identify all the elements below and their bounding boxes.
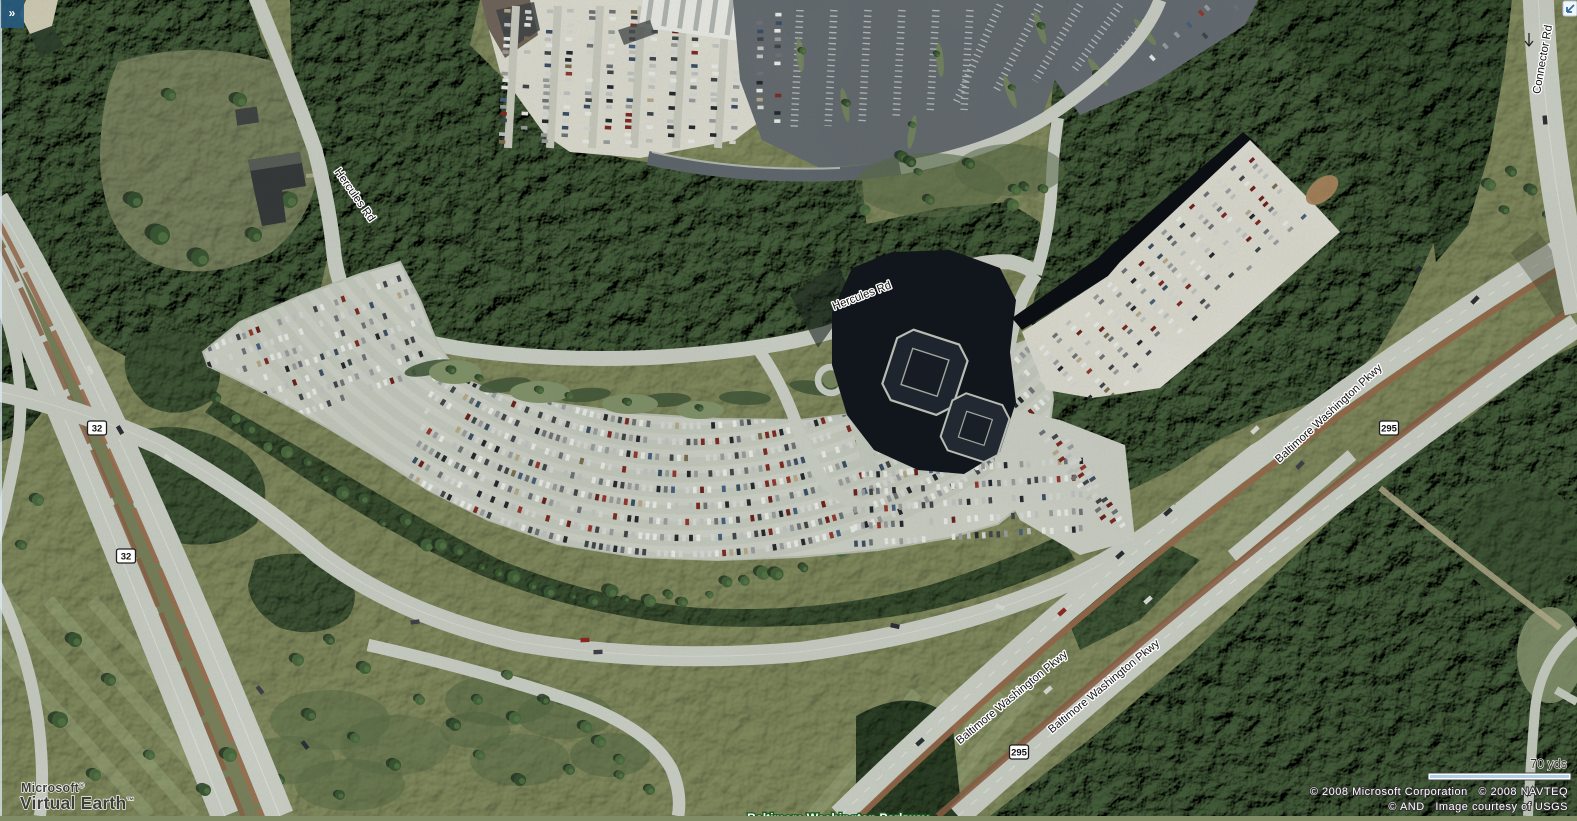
svg-text:Baltimore Washington Parkway: Baltimore Washington Parkway — [747, 811, 929, 816]
svg-text:70 yds: 70 yds — [1530, 757, 1567, 771]
svg-text:295: 295 — [1381, 424, 1398, 435]
svg-text:32: 32 — [121, 552, 132, 563]
svg-text:»: » — [9, 6, 16, 20]
svg-text:32: 32 — [92, 424, 103, 435]
svg-text:© 2008 Microsoft Corporation: © 2008 Microsoft Corporation © 2008 NAVT… — [1310, 786, 1568, 798]
svg-text:295: 295 — [1011, 748, 1028, 759]
svg-text:Virtual Earth™: Virtual Earth™ — [20, 793, 135, 813]
svg-text:© AND Image courtesy of USGS: © AND Image courtesy of USGS — [1388, 801, 1568, 813]
